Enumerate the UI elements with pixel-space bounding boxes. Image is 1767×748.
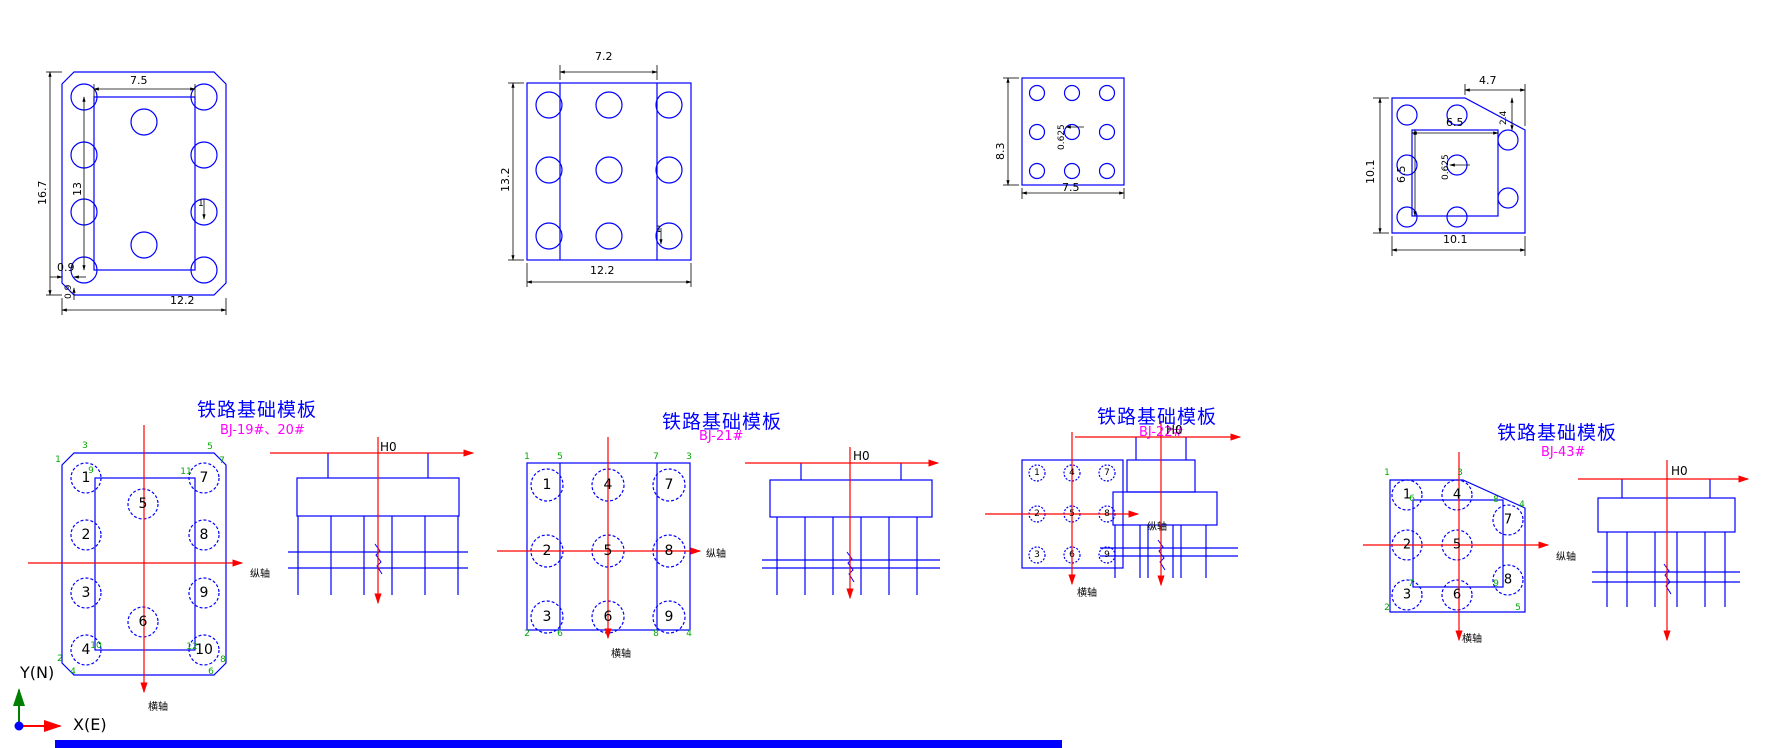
bottom-blue-bar (55, 740, 1062, 748)
footing-plan-d (1392, 98, 1525, 233)
template-elevation-3 (1100, 437, 1238, 578)
footing-b-dimensions (508, 65, 691, 287)
cad-linework (0, 0, 1767, 748)
template-axes-1 (28, 425, 242, 692)
footing-c-dimensions (1003, 78, 1124, 199)
ucs-icon (15, 690, 61, 731)
footing-plan-c (1022, 78, 1124, 185)
cad-drawing-canvas: 7.5 16.7 13 12.2 0.9 0.9 1 7.2 13.2 12.2… (0, 0, 1767, 748)
template-elevation-axes-3 (1075, 421, 1240, 585)
footing-plan-b (527, 83, 691, 260)
footing-plan-a (62, 72, 226, 295)
template-elevation-axes-1 (270, 437, 473, 603)
template-elevation-2 (762, 463, 940, 595)
template-elevation-axes-2 (745, 447, 938, 598)
template-plan-4 (1390, 480, 1525, 612)
template-elevation-axes-4 (1578, 460, 1748, 640)
template-elevation-4 (1592, 479, 1740, 607)
